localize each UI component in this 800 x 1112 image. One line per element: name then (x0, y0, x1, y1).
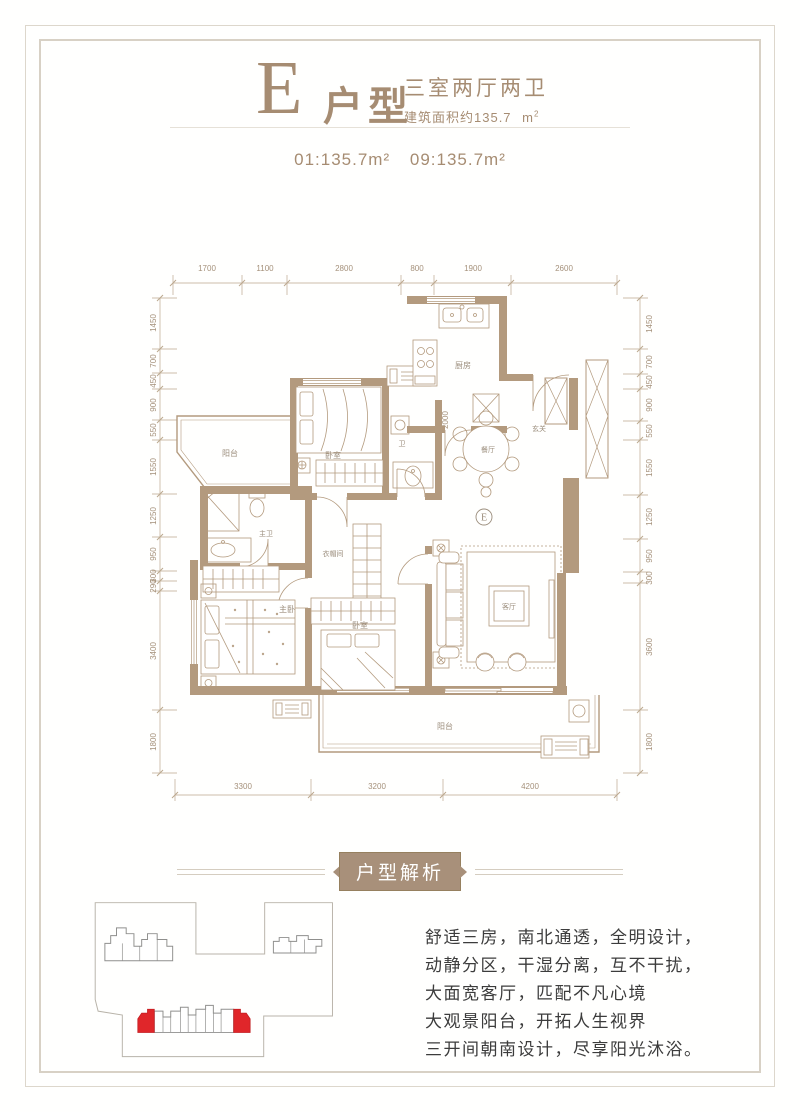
unit-letter: E (256, 50, 302, 126)
unit-area: 建筑面积约135.7 m2 (404, 107, 548, 126)
bedroom2-furniture (311, 598, 395, 690)
unit-layout: 三室两厅两卫 (404, 72, 548, 102)
svg-text:950: 950 (149, 547, 158, 561)
svg-text:1100: 1100 (256, 264, 274, 273)
svg-text:700: 700 (645, 355, 654, 369)
label-balcony-bottom: 阳台 (437, 721, 453, 731)
building-bottom-mid (154, 1005, 233, 1032)
dining-table (453, 411, 519, 497)
svg-text:1550: 1550 (645, 459, 654, 477)
unit-09: 09:135.7m² (410, 150, 506, 169)
svg-text:3300: 3300 (234, 782, 252, 791)
svg-text:1550: 1550 (149, 458, 158, 476)
analysis-text: 舒适三房，南北通透，全明设计， 动静分区，干湿分离，互不干扰， 大面宽客厅，匹配… (425, 924, 703, 1064)
svg-text:1450: 1450 (149, 314, 158, 332)
label-master-bedroom: 主卧 (279, 604, 295, 614)
cloakroom-closet (353, 524, 381, 608)
svg-text:950: 950 (645, 549, 654, 563)
svg-text:450: 450 (645, 375, 654, 389)
label-master-bath: 主卫 (259, 529, 273, 538)
living-furniture (433, 540, 561, 671)
building-outlines (105, 928, 322, 1033)
site-key-map (83, 893, 365, 1082)
svg-text:1250: 1250 (149, 507, 158, 525)
svg-text:550: 550 (149, 423, 158, 437)
floor-plan: 1700 1100 2800 800 1900 2600 3300 3200 4… (145, 248, 655, 804)
building-top-right (273, 936, 321, 953)
svg-text:1900: 1900 (464, 264, 482, 273)
svg-text:2600: 2600 (555, 264, 573, 273)
label-cloakroom: 衣帽间 (323, 549, 344, 558)
label-bedroom2: 卧室 (352, 620, 368, 630)
banner-notch-right (458, 864, 467, 880)
svg-text:900: 900 (645, 398, 654, 412)
unit-numbers: 01:135.7m² 09:135.7m² (0, 150, 800, 170)
unit-spec: 三室两厅两卫 建筑面积约135.7 m2 (404, 72, 548, 126)
ac-right (541, 736, 589, 758)
key-map-svg (83, 893, 365, 1077)
svg-text:E: E (481, 513, 487, 524)
site-boundary (95, 903, 332, 1057)
svg-text:1250: 1250 (645, 508, 654, 526)
label-kitchen: 厨房 (455, 360, 471, 370)
svg-text:1700: 1700 (198, 264, 216, 273)
label-bath: 卫 (399, 440, 406, 448)
floor-plan-svg: 1700 1100 2800 800 1900 2600 3300 3200 4… (145, 248, 655, 804)
building-top-left (105, 928, 173, 961)
section-banner: 户型解析 (0, 852, 800, 891)
label-foyer: 玄关 (532, 424, 546, 433)
unit-01: 01:135.7m² (294, 150, 390, 169)
svg-text:450: 450 (149, 374, 158, 388)
label-living: 客厅 (502, 602, 516, 611)
label-balcony-left: 阳台 (222, 448, 238, 458)
bedroom-top-furniture (294, 387, 383, 486)
svg-text:800: 800 (410, 264, 424, 273)
svg-text:4200: 4200 (521, 782, 539, 791)
banner-line-right (475, 869, 623, 875)
label-bedroom-top: 卧室 (325, 450, 341, 460)
svg-text:3400: 3400 (149, 642, 158, 660)
master-bedroom-furniture (201, 566, 295, 690)
analysis-line: 大观景阳台，开拓人生视界 (425, 1008, 703, 1036)
flyer-page: E 户型 三室两厅两卫 建筑面积约135.7 m2 01:135.7m² 09:… (0, 0, 800, 1112)
svg-text:2800: 2800 (335, 264, 353, 273)
unit-type-label: 户型 (323, 74, 413, 132)
analysis-line: 大面宽客厅，匹配不凡心境 (425, 980, 703, 1008)
analysis-line: 动静分区，干湿分离，互不干扰， (425, 952, 703, 980)
analysis-line: 三开间朝南设计，尽享阳光沐浴。 (425, 1036, 703, 1064)
svg-text:1800: 1800 (149, 733, 158, 751)
svg-text:1800: 1800 (645, 733, 654, 751)
analysis-line: 舒适三房，南北通透，全明设计， (425, 924, 703, 952)
banner-title: 户型解析 (339, 852, 461, 891)
master-bath-fixtures (203, 491, 265, 562)
ac-left (273, 700, 311, 718)
label-dining: 餐厅 (481, 445, 495, 454)
banner-line-left (177, 869, 325, 875)
header-divider (170, 127, 630, 128)
svg-text:1450: 1450 (645, 315, 654, 333)
svg-text:550: 550 (645, 424, 654, 438)
svg-text:300: 300 (645, 571, 654, 585)
unit-highlight-left (138, 1009, 154, 1032)
unit-highlight-right (234, 1009, 250, 1032)
unit-marker: E (476, 509, 492, 525)
svg-text:700: 700 (149, 354, 158, 368)
svg-text:3600: 3600 (645, 638, 654, 656)
svg-text:290: 290 (149, 579, 158, 593)
svg-text:3200: 3200 (368, 782, 386, 791)
svg-text:900: 900 (149, 398, 158, 412)
